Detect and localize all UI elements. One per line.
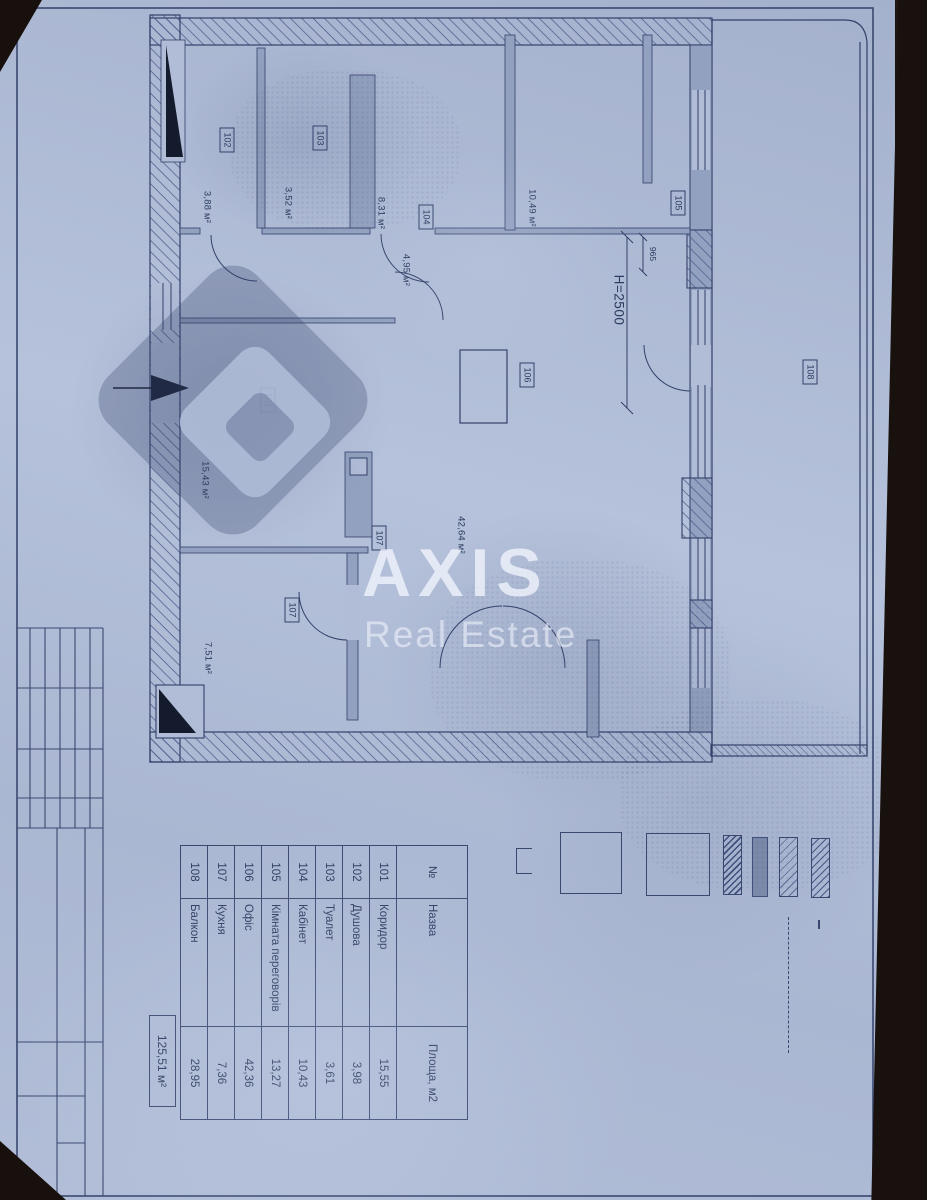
table-row: 101 Коридор 15,55	[370, 846, 397, 1120]
room-num: 107	[208, 846, 235, 899]
area-label-105: 10,49 м²	[527, 189, 538, 227]
room-schedule-table: № Назва Площа, м2 101 Коридор 15,55 102 …	[180, 845, 468, 1120]
room-area: 7,36	[208, 1027, 235, 1120]
room-area: 15,55	[370, 1027, 397, 1120]
legend-tick-icon	[818, 920, 820, 929]
room-num: 103	[316, 846, 343, 899]
room-area: 42,36	[235, 1027, 262, 1120]
table-row: 108 Балкон 28,95	[181, 846, 208, 1120]
legend-dashed-line-icon	[788, 917, 789, 1053]
room-name: Офіс	[235, 899, 262, 1027]
legend-square-icon	[560, 832, 622, 894]
legend-square-icon	[646, 833, 710, 896]
watermark-subtitle: Real Estate	[364, 614, 577, 656]
room-tag-103: 103	[313, 125, 328, 150]
room-tag-105: 105	[671, 190, 686, 215]
room-tag-104: 104	[419, 204, 434, 229]
window-wall	[682, 45, 712, 732]
room-name: Кімната переговорів	[262, 899, 289, 1027]
kitchen-door-opening	[346, 585, 359, 640]
room-name: Душова	[343, 899, 370, 1027]
legend-hatch-medium-icon	[811, 838, 830, 898]
area-label-103: 3,52 м²	[283, 187, 294, 219]
legend-hatch-light-icon	[779, 837, 798, 897]
schedule-header-name: Назва	[397, 899, 468, 1027]
room-name: Туалет	[316, 899, 343, 1027]
room-tag-106: 106	[520, 362, 535, 387]
room-name: Кухня	[208, 899, 235, 1027]
niche-dimension: 965	[648, 247, 658, 261]
room-name: Коридор	[370, 899, 397, 1027]
legend-hatch-dense-icon	[723, 835, 742, 895]
floorplan-photo: 101 15,43 м² 102 3,88 м² 103 3,52 м² 104…	[0, 0, 927, 1200]
room-name: Кабінет	[289, 899, 316, 1027]
area-label-102: 3,88 м²	[202, 191, 213, 223]
room-area: 3,61	[316, 1027, 343, 1120]
title-block	[17, 628, 103, 1196]
room-tag-107b: 107	[285, 597, 300, 622]
area-label-hall: 4,95 м²	[401, 254, 412, 286]
room-area: 10,43	[289, 1027, 316, 1120]
balcony-rail	[712, 20, 867, 756]
legend-bracket-icon	[516, 848, 532, 874]
area-label-104: 8,31 м²	[376, 197, 387, 229]
schedule-header-row: № Назва Площа, м2	[397, 846, 468, 1120]
desk	[460, 350, 507, 423]
schedule-header-area: Площа, м2	[397, 1027, 468, 1120]
room-num: 106	[235, 846, 262, 899]
schedule-header-num: №	[397, 846, 468, 899]
room-num: 105	[262, 846, 289, 899]
table-row: 104 Кабінет 10,43	[289, 846, 316, 1120]
room-tag-108: 108	[803, 359, 818, 384]
legend-solid-fill-icon	[752, 837, 768, 897]
room-name: Балкон	[181, 899, 208, 1027]
room-area: 28,95	[181, 1027, 208, 1120]
table-row: 105 Кімната переговорів 13,27	[262, 846, 289, 1120]
room-area: 13,27	[262, 1027, 289, 1120]
table-row: 106 Офіс 42,36	[235, 846, 262, 1120]
total-area: 125,51 м²	[149, 1015, 176, 1107]
room-num: 102	[343, 846, 370, 899]
area-label-107: 7,51 м²	[203, 642, 214, 674]
room-num: 104	[289, 846, 316, 899]
room-area: 3,98	[343, 1027, 370, 1120]
room-num: 108	[181, 846, 208, 899]
table-row: 102 Душова 3,98	[343, 846, 370, 1120]
watermark-brand: AXIS	[362, 534, 549, 612]
shaft-window	[350, 458, 367, 475]
table-row: 103 Туалет 3,61	[316, 846, 343, 1120]
table-row: 107 Кухня 7,36	[208, 846, 235, 1120]
ceiling-height-dimension: H=2500	[612, 275, 627, 326]
room-tag-102: 102	[220, 127, 235, 152]
room-num: 101	[370, 846, 397, 899]
